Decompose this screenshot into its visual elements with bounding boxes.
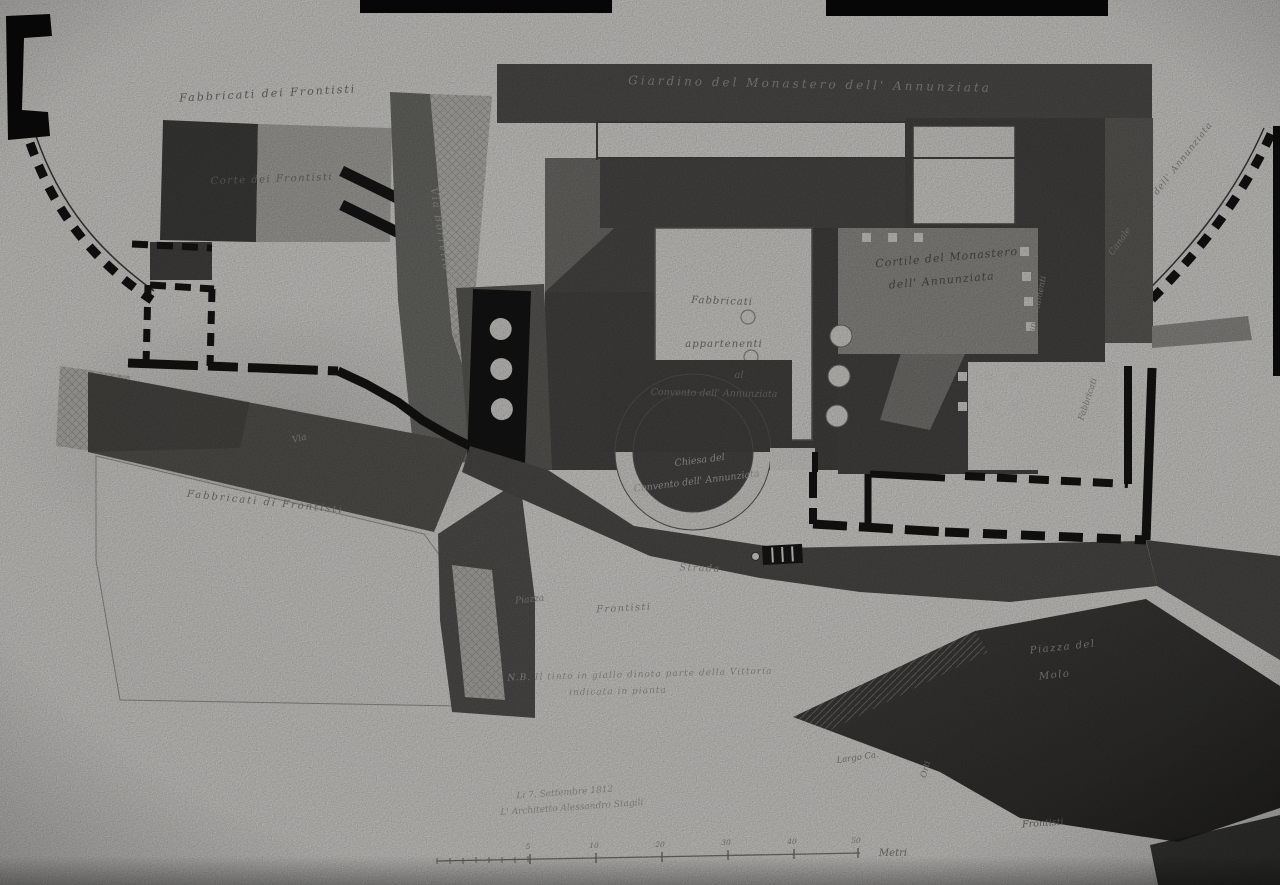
plan-drawing: Fabbricati dei Frontisti Corte dei Front… [0,0,1280,885]
film-grain [0,0,1280,885]
photograph-of-architectural-plan: Fabbricati dei Frontisti Corte dei Front… [0,0,1280,885]
